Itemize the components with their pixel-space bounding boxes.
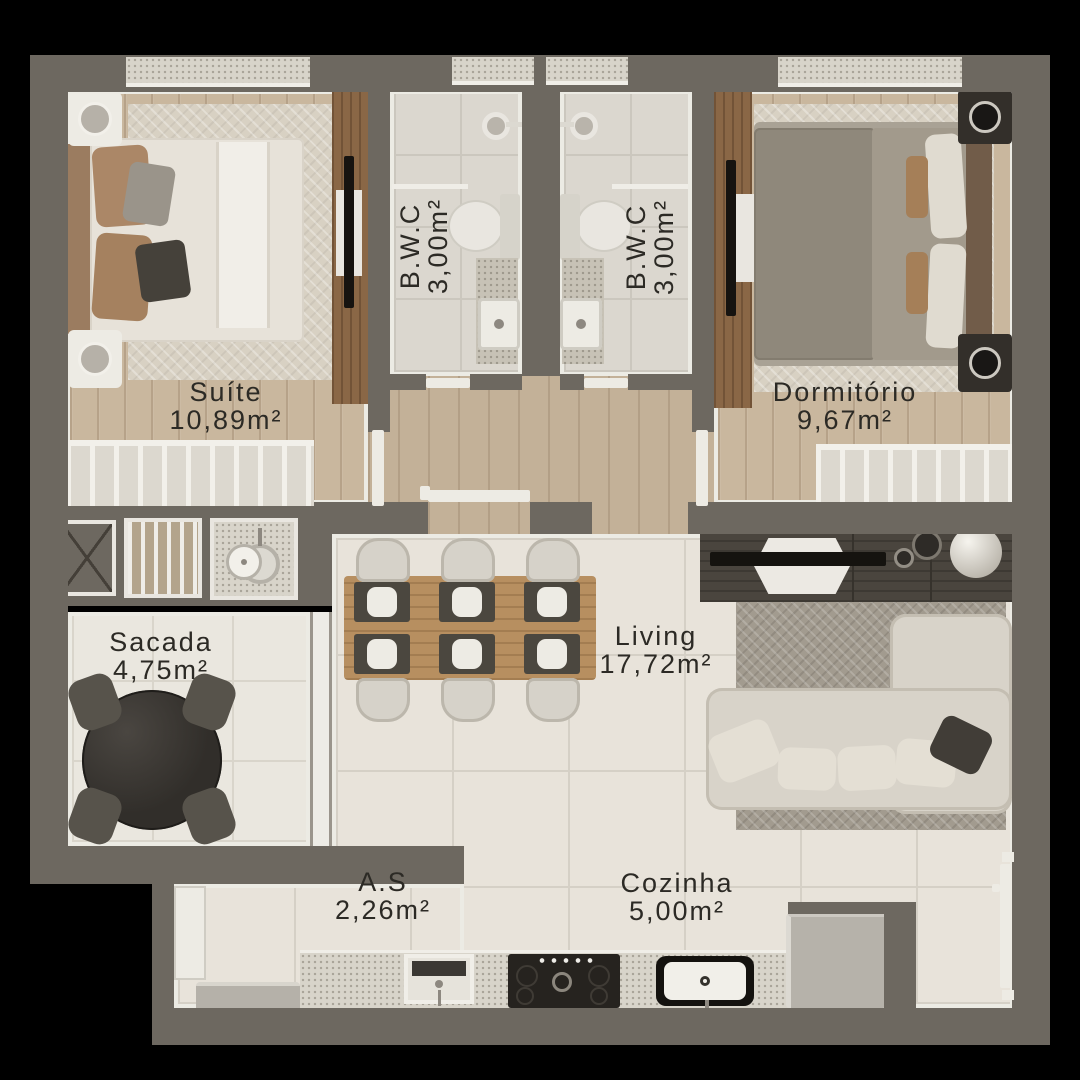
- laundry-faucet-stem: [438, 990, 441, 1006]
- wall-bathroom-dormitorio-lower: [692, 374, 714, 432]
- decor-vase-small: [894, 548, 914, 568]
- hall-door-handle: [420, 486, 430, 500]
- dormitorio-area: 9,67m²: [773, 406, 918, 434]
- living-name: Living: [599, 622, 712, 650]
- suite-bed-throw: [216, 142, 270, 328]
- barbecue-faucet-icon: [258, 528, 262, 546]
- dining-plate-3: [537, 587, 567, 617]
- suite-closet-shelves: [66, 440, 314, 506]
- dining-plate-1: [367, 587, 397, 617]
- laundry-sink-shadow: [412, 961, 466, 976]
- dining-placemat-6: [524, 634, 580, 674]
- wall-kitchen-recess: [788, 902, 916, 914]
- entry-door-handle: [992, 884, 1000, 892]
- wall-bathroom-left-bottom-b: [470, 374, 522, 390]
- room-label-suite: Suíte 10,89m²: [169, 378, 282, 434]
- floor-plan: Suíte 10,89m² B.W.C 3,00m² B.W.C 3,00m² …: [0, 0, 1080, 1080]
- room-label-bwc-left: B.W.C 3,00m²: [396, 198, 452, 294]
- stairs: [124, 518, 202, 598]
- wall-hall-right: [530, 502, 592, 534]
- shower-glass-right: [612, 184, 688, 189]
- stove-burner-2: [588, 965, 610, 987]
- dining-placemat-2: [439, 582, 495, 622]
- stove-burner-1: [516, 965, 538, 987]
- wall-service-left: [152, 884, 174, 1008]
- wall-bathroom-left-bottom-a: [390, 374, 426, 390]
- stove-knobs: [536, 957, 596, 964]
- bathroom-left-door: [426, 378, 470, 388]
- dormitorio-pillow-brown-1: [906, 156, 928, 218]
- bathroom-right-door: [584, 378, 628, 388]
- wall-bathroom-right-bottom-b: [628, 374, 692, 390]
- laundry-sink: [404, 954, 474, 1004]
- balcony-glass-door: [310, 612, 332, 846]
- bwc-left-name: B.W.C: [396, 198, 424, 294]
- room-label-sacada: Sacada 4,75m²: [109, 628, 213, 684]
- dormitorio-window: [778, 57, 962, 87]
- wall-bathroom-right-bottom-a: [560, 374, 584, 390]
- dormitorio-headboard: [966, 118, 992, 368]
- dining-plate-5: [452, 639, 482, 669]
- laundry-faucet-icon: [435, 980, 443, 988]
- wall-suite-bathroom-lower: [368, 374, 390, 432]
- suite-bed-headboard: [66, 144, 92, 334]
- dining-placemat-1: [354, 582, 410, 622]
- wall-right: [1012, 55, 1050, 1045]
- cozinha-name: Cozinha: [620, 869, 733, 897]
- dining-plate-6: [537, 639, 567, 669]
- sofa-pillow-2: [777, 747, 836, 791]
- hall-door: [428, 490, 530, 502]
- dormitorio-name: Dormitório: [773, 378, 918, 406]
- dormitorio-nightstand-bottom: [958, 334, 1012, 392]
- dormitorio-pillow-brown-2: [906, 252, 928, 314]
- stove-burner-center: [552, 972, 572, 992]
- dining-placemat-5: [439, 634, 495, 674]
- fridge: [786, 914, 886, 1008]
- bathroom-left-window: [452, 57, 534, 85]
- kitchen-faucet-icon: [700, 976, 710, 986]
- laundry-cabinet: [174, 886, 206, 980]
- living-tv-stand: [754, 538, 850, 594]
- suite-area: 10,89m²: [169, 406, 282, 434]
- suite-window: [126, 57, 310, 87]
- as-area: 2,26m²: [335, 896, 431, 924]
- suite-tv: [344, 156, 354, 308]
- bwc-left-area: 3,00m²: [424, 198, 452, 294]
- wall-hall-left: [332, 502, 428, 534]
- shower-head-right-icon: [570, 112, 598, 140]
- dining-chair-2: [441, 538, 495, 582]
- room-label-living: Living 17,72m²: [599, 622, 712, 678]
- suite-door: [372, 430, 384, 506]
- as-name: A.S: [335, 868, 431, 896]
- dormitorio-lamp-bottom: [969, 347, 1001, 379]
- dormitorio-closet-shelves: [816, 444, 1014, 506]
- bathroom-sink-left: [478, 298, 520, 350]
- stove-burner-4: [590, 987, 608, 1005]
- suite-nightstand-top: [68, 92, 122, 146]
- bathroom-sink-right: [560, 298, 602, 350]
- suite-name: Suíte: [169, 378, 282, 406]
- suite-pillow-dark: [134, 239, 192, 303]
- dining-plate-4: [367, 639, 397, 669]
- faucet-left-icon: [494, 319, 504, 329]
- suite-lamp-bottom: [78, 342, 112, 376]
- wall-left: [30, 55, 68, 848]
- dormitorio-tv: [726, 160, 736, 316]
- entry-door-jamb-top: [1002, 852, 1014, 862]
- suite-lamp-top: [78, 102, 112, 136]
- suite-pillow-gray: [122, 161, 177, 227]
- dining-chair-5: [441, 678, 495, 722]
- faucet-right-icon: [576, 319, 586, 329]
- wall-dormitorio-living: [688, 502, 1014, 534]
- dormitorio-pillow-white-2: [925, 243, 966, 349]
- dining-chair-3: [526, 538, 580, 582]
- entry-door-jamb-bottom: [1002, 990, 1014, 1000]
- dining-chair-6: [526, 678, 580, 722]
- toilet-left: [448, 200, 504, 252]
- bwc-right-name: B.W.C: [622, 199, 650, 295]
- dormitorio-lamp-top: [969, 101, 1001, 133]
- cozinha-area: 5,00m²: [620, 897, 733, 925]
- room-label-cozinha: Cozinha 5,00m²: [620, 869, 733, 925]
- pendant-bulb: [241, 559, 247, 565]
- dormitorio-door: [696, 430, 708, 506]
- dining-plate-2: [452, 587, 482, 617]
- stove-burner-3: [516, 987, 534, 1005]
- kitchen-sink: [656, 956, 754, 1006]
- sideboard-divider-1: [852, 530, 854, 602]
- dining-chair-4: [356, 678, 410, 722]
- suite-nightstand-bottom: [68, 330, 122, 388]
- room-label-dormitorio: Dormitório 9,67m²: [773, 378, 918, 434]
- room-label-bwc-right: B.W.C 3,00m²: [622, 199, 678, 295]
- bathroom-right-window: [546, 57, 628, 85]
- toilet-tank-right: [560, 194, 580, 260]
- entry-door: [1000, 864, 1012, 988]
- shower-glass-left: [392, 184, 468, 189]
- wall-suite-bathroom: [368, 88, 390, 374]
- dining-chair-1: [356, 538, 410, 582]
- shower-arm-left: [506, 122, 522, 127]
- dormitorio-nightstand-top: [958, 90, 1012, 144]
- sacada-name: Sacada: [109, 628, 213, 656]
- dining-placemat-4: [354, 634, 410, 674]
- wall-bottom: [152, 1008, 1014, 1045]
- wall-between-bathrooms: [522, 55, 560, 376]
- room-label-as: A.S 2,26m²: [335, 868, 431, 924]
- balcony-centerpiece: [130, 738, 174, 782]
- toilet-tank-left: [500, 194, 520, 260]
- wall-kitchen-stub: [884, 908, 916, 1008]
- sofa-pillow-3: [837, 745, 897, 792]
- dormitorio-pillow-white-1: [924, 133, 967, 239]
- dining-placemat-3: [524, 582, 580, 622]
- stove-cooktop: [508, 954, 620, 1008]
- living-area: 17,72m²: [599, 650, 712, 678]
- shower-arm-right: [558, 122, 574, 127]
- decor-vase-large: [912, 530, 942, 560]
- living-tv: [710, 552, 886, 566]
- pendant-lamp-icon: [226, 544, 262, 580]
- dormitorio-duvet-dark: [754, 128, 876, 360]
- wall-bathroom-dormitorio: [692, 88, 714, 374]
- bwc-right-area: 3,00m²: [650, 199, 678, 295]
- sacada-area: 4,75m²: [109, 656, 213, 684]
